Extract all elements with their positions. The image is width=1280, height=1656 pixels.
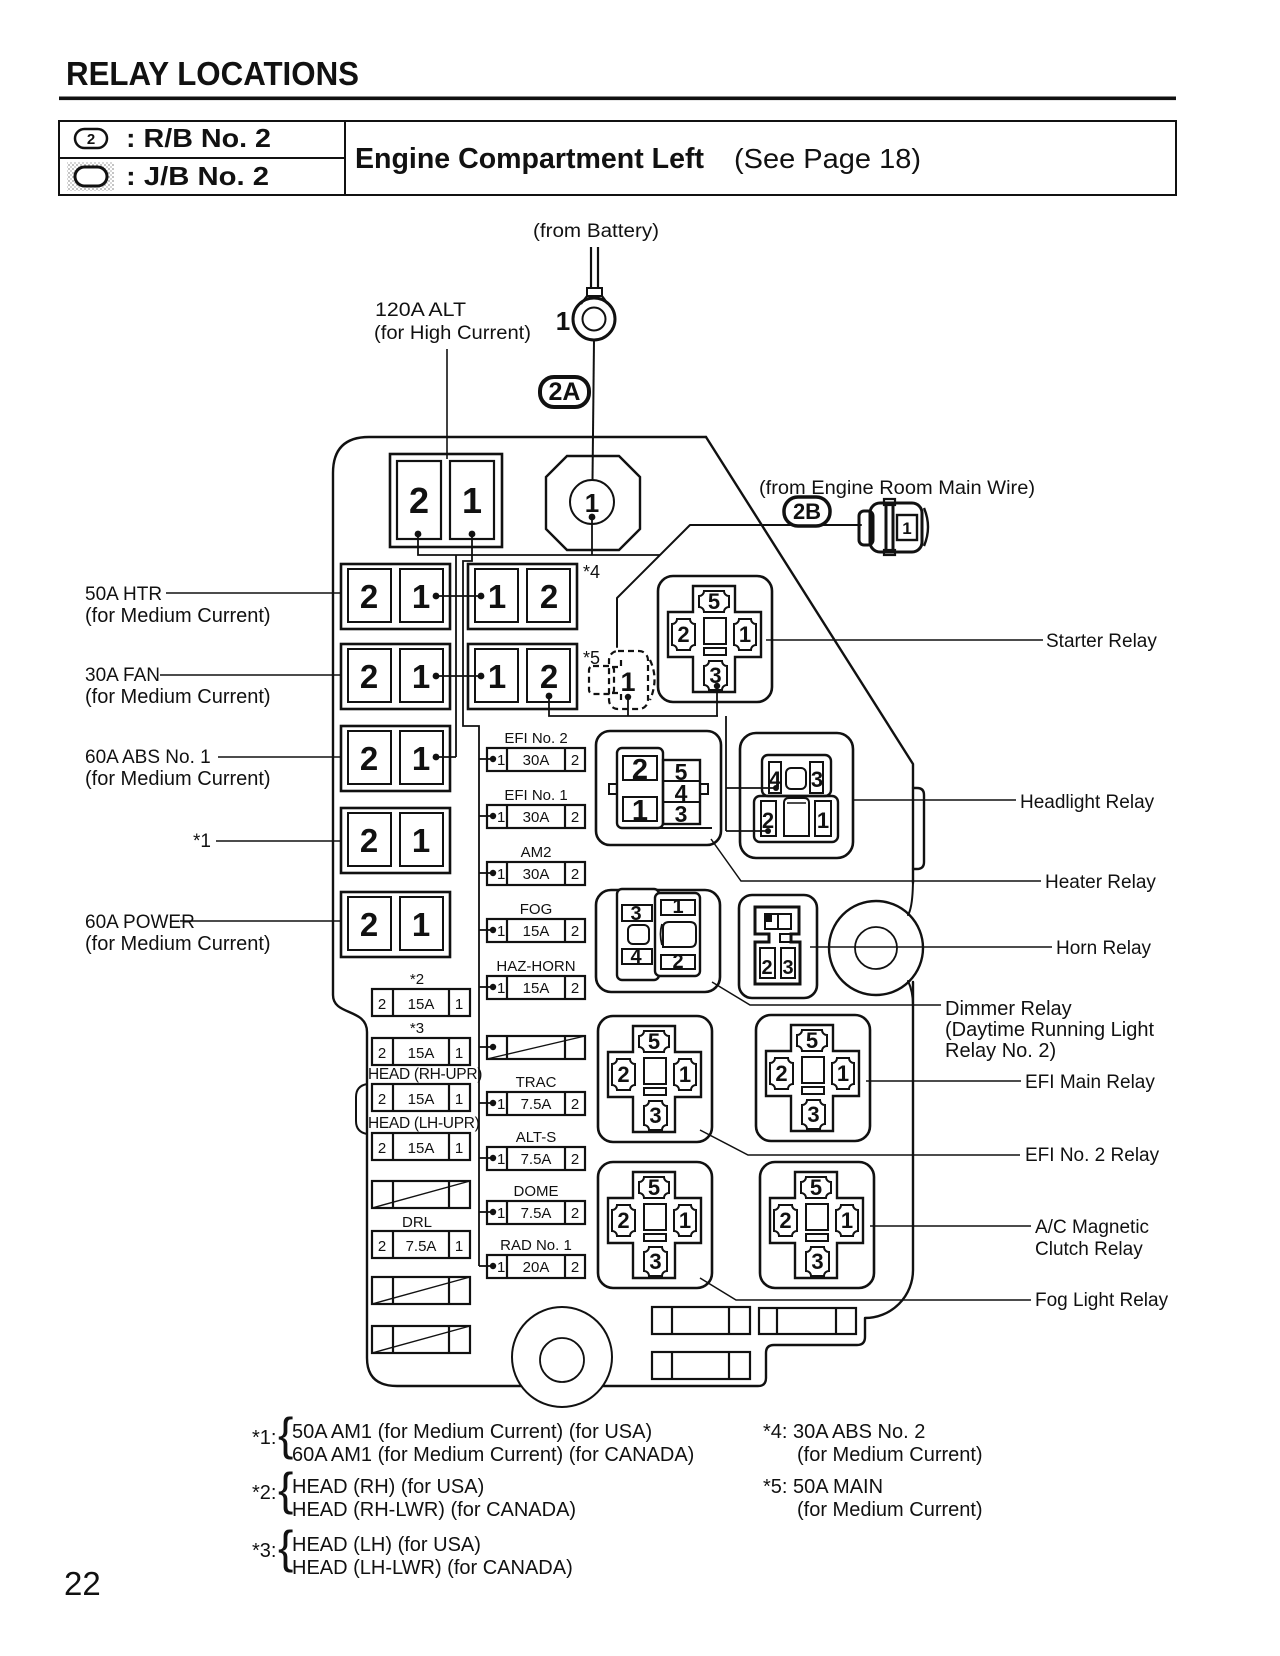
svg-text:1: 1 (556, 306, 570, 336)
svg-text:22: 22 (64, 1565, 101, 1602)
svg-text:2: 2 (571, 1151, 579, 1168)
svg-text:1: 1 (632, 795, 648, 827)
svg-text:2: 2 (87, 131, 95, 148)
svg-text:1: 1 (455, 1045, 463, 1062)
svg-text:2: 2 (571, 980, 579, 997)
svg-text:2: 2 (672, 951, 683, 973)
svg-text:(for Medium Current): (for Medium Current) (85, 605, 271, 627)
svg-text:15A: 15A (523, 980, 550, 997)
svg-text:(for Medium Current): (for Medium Current) (85, 933, 271, 955)
svg-text:2: 2 (378, 1238, 386, 1255)
svg-text:2B: 2B (793, 499, 821, 524)
svg-text:2: 2 (571, 866, 579, 883)
svg-text:1: 1 (902, 519, 911, 538)
svg-text:EFI Main Relay: EFI Main Relay (1025, 1072, 1155, 1093)
svg-text:HEAD (RH-UPR): HEAD (RH-UPR) (368, 1066, 482, 1083)
svg-text:(for High Current): (for High Current) (374, 323, 531, 344)
svg-text:30A: 30A (523, 809, 550, 826)
svg-text:30A: 30A (523, 866, 550, 883)
svg-text:EFI No. 2 Relay: EFI No. 2 Relay (1025, 1145, 1160, 1166)
svg-text:1: 1 (412, 740, 430, 777)
svg-text:(See Page 18): (See Page 18) (734, 143, 921, 174)
svg-text:EFI No. 1: EFI No. 1 (504, 787, 567, 804)
svg-text:1: 1 (412, 822, 430, 859)
svg-text:1: 1 (672, 896, 683, 918)
svg-text:50A HTR: 50A HTR (85, 584, 162, 605)
svg-text:2: 2 (571, 1259, 579, 1276)
svg-text:TRAC: TRAC (516, 1074, 557, 1091)
svg-text:3: 3 (675, 801, 688, 827)
svg-text:7.5A: 7.5A (521, 1096, 552, 1113)
svg-text:DOME: DOME (514, 1183, 559, 1200)
svg-text:2: 2 (378, 1091, 386, 1108)
svg-text:*1:: *1: (252, 1427, 276, 1449)
svg-text:AM2: AM2 (521, 844, 552, 861)
svg-text:1: 1 (455, 1091, 463, 1108)
svg-text:Engine Compartment Left: Engine Compartment Left (355, 143, 704, 175)
svg-text:RELAY LOCATIONS: RELAY LOCATIONS (66, 55, 359, 92)
svg-text:2A: 2A (549, 378, 581, 406)
svg-text:HEAD (RH) (for USA): HEAD (RH) (for USA) (292, 1476, 484, 1498)
svg-text:1: 1 (620, 667, 635, 697)
svg-text:ALT-S: ALT-S (516, 1129, 557, 1146)
svg-text:HEAD (LH) (for USA): HEAD (LH) (for USA) (292, 1534, 481, 1556)
svg-text:2: 2 (761, 957, 772, 979)
svg-text:1: 1 (497, 980, 505, 997)
svg-text:HEAD (LH-UPR): HEAD (LH-UPR) (368, 1115, 480, 1132)
svg-text:15A: 15A (408, 996, 435, 1013)
svg-text:7.5A: 7.5A (406, 1238, 437, 1255)
svg-text:RAD No. 1: RAD No. 1 (500, 1237, 572, 1254)
svg-text:2: 2 (360, 740, 378, 777)
svg-text:*3: *3 (410, 1020, 424, 1037)
svg-text:1: 1 (817, 808, 829, 833)
svg-text:: R/B No. 2: : R/B No. 2 (126, 123, 271, 153)
svg-text:HAZ-HORN: HAZ-HORN (496, 958, 575, 975)
svg-text:2: 2 (360, 658, 378, 695)
svg-text:1: 1 (497, 1205, 505, 1222)
svg-text:*4: *4 (583, 562, 600, 582)
svg-text:1: 1 (497, 752, 505, 769)
svg-text:2: 2 (571, 809, 579, 826)
svg-text:15A: 15A (408, 1140, 435, 1157)
svg-text:2: 2 (571, 1205, 579, 1222)
svg-text:3: 3 (630, 903, 641, 925)
svg-text:*3:: *3: (252, 1540, 276, 1562)
svg-text:15A: 15A (523, 923, 550, 940)
svg-text:Dimmer Relay: Dimmer Relay (945, 998, 1072, 1020)
svg-text:30A FAN: 30A FAN (85, 665, 160, 686)
svg-text:15A: 15A (408, 1045, 435, 1062)
svg-text:Heater Relay: Heater Relay (1045, 872, 1156, 893)
svg-text:Clutch Relay: Clutch Relay (1035, 1239, 1143, 1260)
svg-text:1: 1 (497, 1151, 505, 1168)
svg-text:1: 1 (462, 480, 482, 521)
svg-text:4: 4 (630, 946, 642, 968)
svg-text:3: 3 (782, 957, 793, 979)
svg-text:1: 1 (488, 658, 506, 695)
svg-text:2: 2 (378, 1140, 386, 1157)
svg-text:2: 2 (540, 658, 558, 695)
svg-text:7.5A: 7.5A (521, 1205, 552, 1222)
svg-text:2: 2 (360, 578, 378, 615)
svg-text:1: 1 (412, 906, 430, 943)
svg-text:Horn Relay: Horn Relay (1056, 938, 1152, 959)
svg-text:FOG: FOG (520, 901, 553, 918)
svg-text:60A ABS No. 1: 60A ABS No. 1 (85, 747, 211, 768)
svg-text:*1: *1 (193, 831, 211, 852)
svg-text:1: 1 (497, 1259, 505, 1276)
svg-text:60A AM1 (for Medium Current) (: 60A AM1 (for Medium Current) (for CANADA… (292, 1444, 694, 1466)
svg-text:2: 2 (378, 1045, 386, 1062)
svg-text:2: 2 (540, 578, 558, 615)
svg-text:1: 1 (585, 488, 599, 518)
svg-text:(Daytime Running Light: (Daytime Running Light (945, 1019, 1154, 1041)
svg-text:2: 2 (378, 996, 386, 1013)
svg-text:2: 2 (360, 906, 378, 943)
svg-text:Starter Relay: Starter Relay (1046, 631, 1157, 652)
svg-text:50A AM1 (for Medium Current) (: 50A AM1 (for Medium Current) (for USA) (292, 1421, 652, 1443)
svg-text:1: 1 (455, 996, 463, 1013)
svg-text:(for Medium Current): (for Medium Current) (85, 686, 271, 708)
svg-text:A/C Magnetic: A/C Magnetic (1035, 1217, 1149, 1238)
svg-text:2: 2 (409, 480, 429, 521)
svg-text:30A: 30A (523, 752, 550, 769)
svg-text:2: 2 (632, 754, 648, 786)
svg-text:*4: 30A ABS No. 2: *4: 30A ABS No. 2 (763, 1421, 925, 1443)
svg-text:: J/B No. 2: : J/B No. 2 (126, 161, 269, 191)
svg-text:Headlight Relay: Headlight Relay (1020, 792, 1155, 813)
svg-text:HEAD (LH-LWR) (for CANADA): HEAD (LH-LWR) (for CANADA) (292, 1557, 573, 1579)
svg-text:120A ALT: 120A ALT (375, 300, 466, 321)
svg-text:2: 2 (571, 1096, 579, 1113)
svg-text:7.5A: 7.5A (521, 1151, 552, 1168)
svg-text:1: 1 (455, 1140, 463, 1157)
svg-text:2: 2 (571, 752, 579, 769)
svg-text:Relay No. 2): Relay No. 2) (945, 1040, 1056, 1062)
svg-text:HEAD (RH-LWR) (for CANADA): HEAD (RH-LWR) (for CANADA) (292, 1499, 576, 1521)
svg-text:1: 1 (412, 658, 430, 695)
svg-text:3: 3 (811, 767, 823, 792)
svg-text:EFI No. 2: EFI No. 2 (504, 730, 567, 747)
svg-text:1: 1 (497, 1096, 505, 1113)
svg-text:1: 1 (497, 866, 505, 883)
svg-text:1: 1 (455, 1238, 463, 1255)
svg-text:DRL: DRL (402, 1214, 432, 1231)
svg-text:*2: *2 (410, 971, 424, 988)
svg-text:1: 1 (488, 578, 506, 615)
svg-text:15A: 15A (408, 1091, 435, 1108)
svg-text:(for Medium Current): (for Medium Current) (85, 768, 271, 790)
svg-text:1: 1 (497, 809, 505, 826)
svg-text:(for Medium Current): (for Medium Current) (797, 1444, 983, 1466)
svg-text:2: 2 (571, 923, 579, 940)
svg-text:Fog Light Relay: Fog Light Relay (1035, 1290, 1169, 1311)
svg-text:*5: 50A MAIN: *5: 50A MAIN (763, 1476, 883, 1498)
svg-text:1: 1 (412, 578, 430, 615)
svg-text:*2:: *2: (252, 1482, 276, 1504)
svg-text:20A: 20A (523, 1259, 550, 1276)
svg-text:2: 2 (360, 822, 378, 859)
svg-text:(for Medium Current): (for Medium Current) (797, 1499, 983, 1521)
svg-text:60A POWER: 60A POWER (85, 912, 195, 933)
svg-text:(from Battery): (from Battery) (533, 221, 659, 242)
svg-text:1: 1 (497, 923, 505, 940)
